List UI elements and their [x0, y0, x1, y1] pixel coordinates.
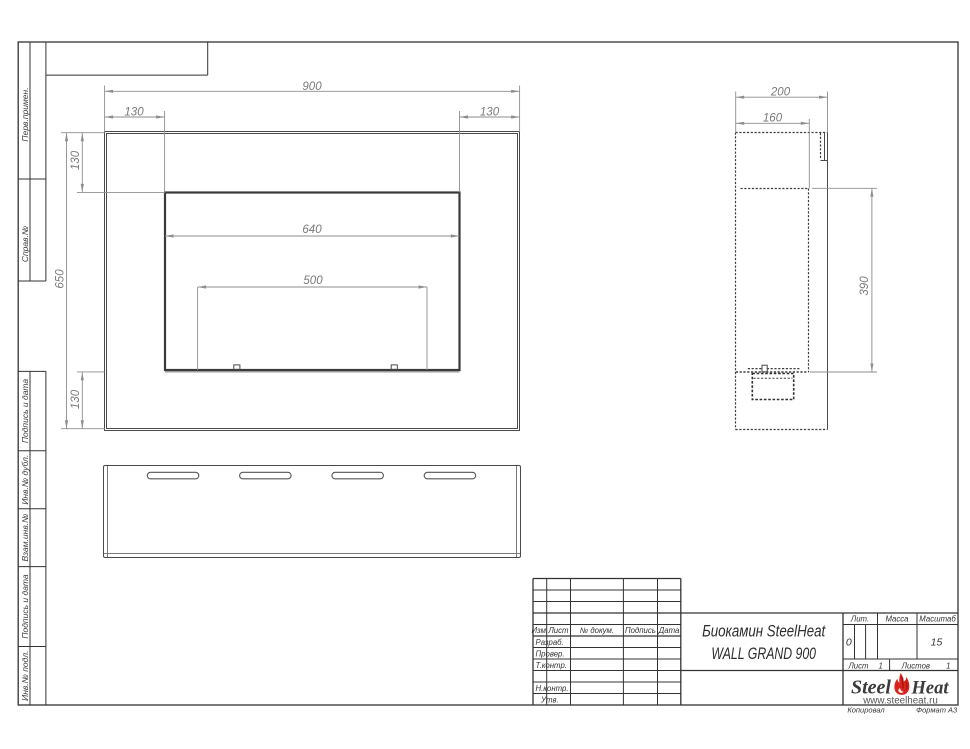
- svg-text:Справ.№: Справ.№: [20, 226, 30, 262]
- svg-text:Утв.: Утв.: [540, 696, 559, 705]
- svg-text:Подпись и дата: Подпись и дата: [20, 574, 30, 639]
- svg-text:WALL GRAND 900: WALL GRAND 900: [711, 645, 816, 663]
- svg-text:Лит.: Лит.: [850, 615, 869, 624]
- svg-text:Взам.инв.№: Взам.инв.№: [20, 514, 30, 562]
- svg-text:Листов: Листов: [901, 661, 930, 670]
- svg-text:130: 130: [124, 107, 144, 119]
- svg-text:130: 130: [70, 389, 82, 409]
- svg-text:15: 15: [931, 637, 943, 649]
- svg-text:130: 130: [480, 107, 500, 119]
- svg-text:Инв.№ подл.: Инв.№ подл.: [20, 651, 30, 701]
- svg-text:Лист: Лист: [547, 626, 569, 635]
- svg-text:Т.контр.: Т.контр.: [536, 661, 567, 670]
- svg-text:900: 900: [302, 81, 322, 93]
- svg-text:Н.контр.: Н.контр.: [536, 684, 569, 693]
- svg-text:Формат А3: Формат А3: [916, 706, 958, 715]
- svg-text:Масштаб: Масштаб: [919, 615, 956, 624]
- svg-text:Подпись и дата: Подпись и дата: [20, 379, 30, 444]
- svg-text:Перв.примен.: Перв.примен.: [20, 87, 30, 141]
- svg-text:www.steelheat.ru: www.steelheat.ru: [862, 696, 938, 707]
- svg-text:1: 1: [879, 661, 883, 670]
- svg-text:Разраб.: Разраб.: [536, 638, 564, 647]
- svg-text:1: 1: [946, 661, 950, 670]
- svg-text:500: 500: [303, 275, 323, 287]
- svg-text:Копировал: Копировал: [847, 706, 885, 715]
- svg-text:390: 390: [859, 276, 871, 296]
- svg-text:Дата: Дата: [658, 626, 680, 635]
- svg-text:130: 130: [70, 150, 82, 170]
- svg-text:Масса: Масса: [885, 615, 909, 624]
- svg-text:Провер.: Провер.: [536, 650, 565, 659]
- svg-text:0: 0: [846, 637, 852, 649]
- svg-text:Подпись: Подпись: [625, 626, 656, 635]
- svg-text:160: 160: [763, 113, 783, 125]
- svg-text:640: 640: [302, 224, 322, 236]
- svg-text:Лист: Лист: [847, 661, 869, 670]
- svg-text:Изм.: Изм.: [531, 626, 548, 635]
- svg-text:Инв.№ дубл.: Инв.№ дубл.: [20, 455, 30, 505]
- svg-text:650: 650: [55, 269, 67, 289]
- svg-text:200: 200: [770, 87, 791, 99]
- svg-text:Биокамин SteelHeat: Биокамин SteelHeat: [702, 622, 826, 641]
- svg-text:№ докум.: № докум.: [580, 626, 614, 635]
